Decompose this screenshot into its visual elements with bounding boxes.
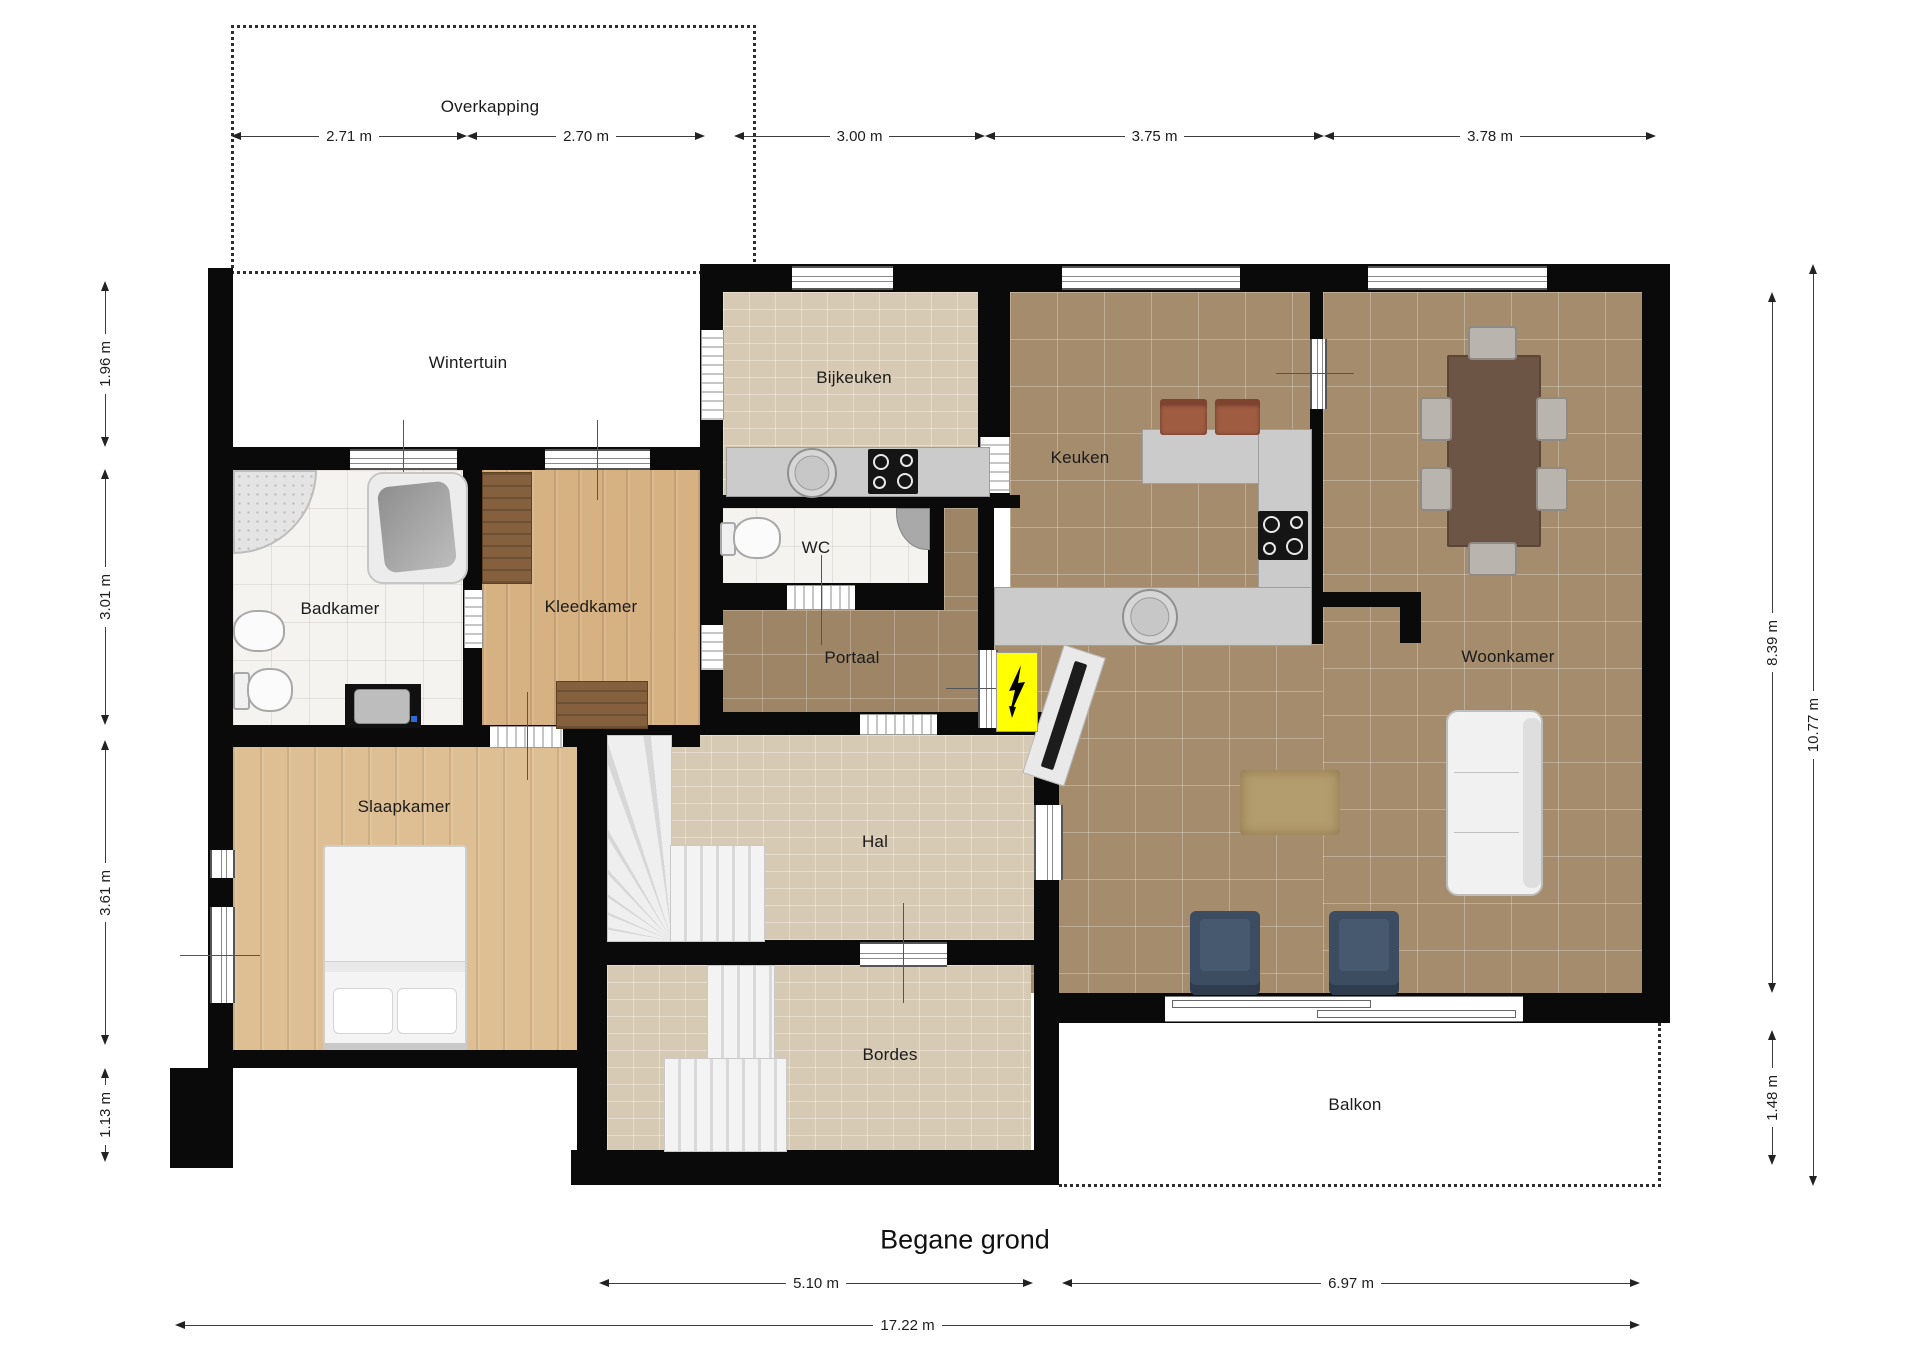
dim-bottom-1722: 17.22 m <box>175 1317 1640 1333</box>
label-kleedkamer: Kleedkamer <box>545 597 638 617</box>
keuken-sink-icon <box>1122 589 1178 645</box>
wall-slaapkamer-bottom <box>208 1050 577 1068</box>
sliding-door-balkon <box>1165 996 1523 1022</box>
label-wintertuin: Wintertuin <box>429 353 508 373</box>
pillow-2 <box>397 988 457 1034</box>
washbasin-alcove <box>345 684 421 728</box>
dim-left-1: 1.96 m <box>97 281 113 447</box>
bed-fold <box>325 961 465 972</box>
page-title: Begane grond <box>880 1225 1050 1256</box>
barstool-1 <box>1160 399 1207 435</box>
dining-chair-right-2 <box>1536 467 1568 511</box>
tick-slaapkamer-door <box>527 692 528 780</box>
door-kleedkamer-portaal <box>701 625 724 670</box>
keuken-counter-right <box>1258 429 1312 589</box>
wall-hal-bordes <box>577 940 1059 965</box>
dim-bottom-510: 5.10 m <box>599 1275 1033 1291</box>
barstool-2 <box>1215 399 1260 435</box>
label-woonkamer: Woonkamer <box>1461 647 1554 667</box>
dining-chair-bottom <box>1468 542 1517 576</box>
label-slaapkamer: Slaapkamer <box>358 797 451 817</box>
dim-top-5: 3.78 m <box>1324 128 1656 144</box>
window-keuken-top <box>1062 266 1240 290</box>
wall-right <box>1642 264 1670 1023</box>
electrical-panel-icon <box>996 652 1038 732</box>
armchair-2 <box>1329 911 1399 995</box>
dim-right-148: 1.48 m <box>1764 1030 1780 1165</box>
stairs-hal-lower <box>670 845 765 942</box>
dim-right-839: 8.39 m <box>1764 292 1780 993</box>
dim-top-4: 3.75 m <box>985 128 1324 144</box>
dim-top-3: 3.00 m <box>734 128 985 144</box>
keuken-cooktop-icon <box>1258 511 1308 560</box>
dining-chair-top <box>1468 326 1517 360</box>
tick-keuken-window <box>1276 373 1354 374</box>
dining-chair-left-1 <box>1420 397 1452 441</box>
tick-slaapkamer-window <box>180 955 260 956</box>
label-bordes: Bordes <box>862 1045 917 1065</box>
label-wc: WC <box>802 538 831 558</box>
wardrobe-2 <box>556 681 648 729</box>
dim-left-4: 1.13 m <box>97 1068 113 1162</box>
label-keuken: Keuken <box>1051 448 1110 468</box>
tick-wc-door <box>821 555 822 645</box>
door-wintertuin-bijkeuken <box>701 330 724 420</box>
dim-left-2: 3.01 m <box>97 469 113 725</box>
dim-top-2: 2.70 m <box>467 128 705 144</box>
window-woonkamer-top <box>1368 266 1547 290</box>
bidet-icon <box>233 610 285 652</box>
washbasin-icon <box>354 689 410 724</box>
toilet-icon-wc <box>733 517 781 559</box>
bijkeuken-cooktop-icon <box>868 449 918 494</box>
tick-hal-window <box>903 903 904 1003</box>
lightning-bolt-icon <box>1004 664 1030 720</box>
stairs-bordes-lower <box>664 1058 787 1152</box>
window-slaapkamer-west-1 <box>210 850 235 878</box>
label-portaal: Portaal <box>824 648 879 668</box>
wardrobe-1 <box>482 472 532 584</box>
dining-table <box>1447 355 1541 547</box>
dim-top-1: 2.71 m <box>231 128 467 144</box>
floor-plan: Overkapping Wintertuin Bijkeuken Keuken … <box>0 0 1920 1358</box>
tick-kleedkamer-window <box>597 420 598 500</box>
dining-chair-right-1 <box>1536 397 1568 441</box>
door-badkamer-kleedkamer <box>464 590 483 648</box>
label-balkon: Balkon <box>1328 1095 1381 1115</box>
window-keuken-woonkamer <box>1310 339 1327 409</box>
window-hal-woonkamer <box>1034 805 1063 880</box>
label-badkamer: Badkamer <box>300 599 379 619</box>
wall-stub-vertical <box>1400 592 1421 643</box>
toilet-icon-badkamer <box>247 668 293 712</box>
label-bijkeuken: Bijkeuken <box>816 368 892 388</box>
window-bijkeuken-top <box>792 266 893 290</box>
label-overkapping: Overkapping <box>441 97 540 117</box>
wall-bordes-bottom <box>571 1150 1059 1185</box>
keuken-counter-top <box>1142 429 1260 484</box>
wall-left-stub <box>170 1068 233 1168</box>
wall-slaapkamer-hal <box>577 747 607 1185</box>
rug <box>1240 770 1340 835</box>
sofa <box>1446 710 1543 896</box>
dim-bottom-697: 6.97 m <box>1062 1275 1640 1291</box>
pillow-1 <box>333 988 393 1034</box>
bathtub-icon <box>367 472 468 584</box>
stairs-hal-winder <box>607 735 672 942</box>
overkapping-outline <box>231 25 756 274</box>
label-hal: Hal <box>862 832 888 852</box>
armchair-1 <box>1190 911 1260 995</box>
door-portaal-hal <box>860 714 937 735</box>
bed <box>323 845 467 1046</box>
window-portaal-keuken <box>978 650 998 728</box>
room-portaal-floor2 <box>944 508 978 610</box>
headboard <box>323 1043 467 1050</box>
washing-machine-icon <box>787 448 837 498</box>
dim-left-3: 3.61 m <box>97 740 113 1045</box>
soap-icon <box>411 716 417 722</box>
bijkeuken-counter <box>726 447 990 497</box>
dining-chair-left-2 <box>1420 467 1452 511</box>
dim-right-1077: 10.77 m <box>1805 264 1821 1186</box>
stairs-bordes-upper <box>707 965 775 1060</box>
